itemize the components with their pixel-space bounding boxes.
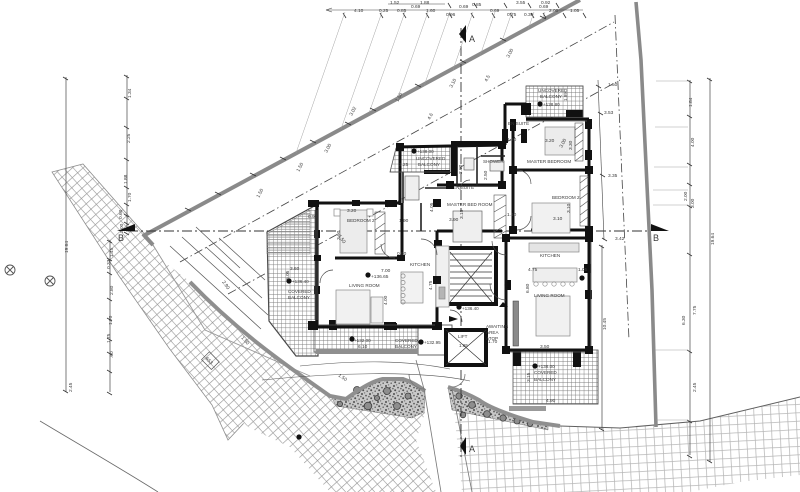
svg-text:0.95: 0.95: [308, 214, 318, 220]
svg-text:BEDROOM 2: BEDROOM 2: [552, 195, 580, 200]
svg-text:1.90: 1.90: [399, 218, 409, 224]
svg-text:1.34: 1.34: [127, 88, 133, 98]
svg-text:COVERED: COVERED: [288, 289, 311, 294]
svg-text:2.80: 2.80: [109, 285, 115, 295]
svg-text:1.20: 1.20: [507, 137, 517, 143]
svg-text:AWAITING: AWAITING: [486, 324, 509, 329]
svg-text:3.90: 3.90: [449, 217, 459, 223]
svg-text:+138.80: +138.80: [543, 102, 560, 107]
svg-text:+138.00: +138.00: [417, 149, 434, 154]
svg-text:B: B: [118, 233, 124, 243]
svg-text:LIVING ROOM: LIVING ROOM: [534, 293, 565, 298]
svg-text:3.20: 3.20: [347, 208, 357, 214]
svg-text:1.89: 1.89: [563, 92, 568, 101]
svg-text:BALCONY: BALCONY: [288, 295, 310, 300]
svg-text:BALCONY: BALCONY: [540, 94, 562, 99]
svg-text:AREA: AREA: [486, 330, 499, 335]
svg-text:EN SUITE: EN SUITE: [508, 121, 529, 126]
svg-text:0.92: 0.92: [541, 0, 551, 6]
svg-text:4.75: 4.75: [528, 267, 538, 273]
svg-text:LIVING ROOM: LIVING ROOM: [349, 283, 380, 288]
svg-text:2.25: 2.25: [126, 133, 132, 143]
svg-text:3.15: 3.15: [459, 209, 465, 219]
svg-text:1.84: 1.84: [688, 97, 694, 107]
svg-text:3.50: 3.50: [540, 344, 550, 350]
svg-text:0.96: 0.96: [446, 12, 456, 18]
svg-text:MASTER BEDROOM: MASTER BEDROOM: [527, 159, 571, 164]
svg-text:A: A: [469, 444, 475, 454]
svg-text:2.00: 2.00: [683, 191, 689, 201]
svg-text:2.60: 2.60: [458, 164, 464, 174]
svg-text:B: B: [653, 233, 659, 243]
svg-text:3.42: 3.42: [615, 236, 625, 242]
svg-text:3.00: 3.00: [690, 198, 696, 208]
svg-text:4.90: 4.90: [546, 398, 556, 404]
svg-text:3.15: 3.15: [526, 372, 532, 382]
svg-text:10.45: 10.45: [602, 318, 608, 330]
svg-text:KITCHEN: KITCHEN: [410, 262, 430, 267]
svg-text:1.50: 1.50: [608, 82, 618, 88]
svg-text:EN SUITE: EN SUITE: [453, 185, 474, 190]
svg-text:1.10: 1.10: [507, 212, 517, 218]
svg-text:2.00: 2.00: [119, 223, 125, 233]
svg-text:1.05: 1.05: [578, 267, 588, 273]
svg-text:7.00: 7.00: [381, 268, 391, 274]
svg-text:0.60: 0.60: [118, 209, 124, 219]
svg-text:COVERED: COVERED: [395, 338, 418, 343]
svg-text:1.88: 1.88: [420, 0, 430, 6]
svg-text:6.30: 6.30: [681, 315, 687, 325]
svg-text:+132.95: +132.95: [424, 340, 441, 345]
svg-text:1.45: 1.45: [109, 247, 115, 257]
svg-text:6.05: 6.05: [285, 270, 291, 280]
svg-text:+132.00: +132.00: [354, 338, 371, 343]
svg-text:1.75: 1.75: [106, 333, 112, 343]
svg-text:+138.00: +138.00: [538, 364, 555, 369]
svg-text:BALCONY: BALCONY: [395, 344, 417, 349]
svg-text:KITCHEN: KITCHEN: [540, 253, 560, 258]
svg-text:1.70: 1.70: [127, 192, 133, 202]
svg-text:MASTER BED ROOM: MASTER BED ROOM: [447, 202, 493, 207]
svg-text:3.10: 3.10: [566, 203, 572, 213]
svg-text:4.00: 4.00: [383, 295, 389, 305]
svg-text:6.10: 6.10: [358, 344, 368, 350]
svg-text:3.20: 3.20: [545, 138, 555, 144]
svg-text:SHOWER: SHOWER: [483, 159, 504, 164]
svg-text:0.85: 0.85: [397, 8, 407, 14]
svg-text:+136.65: +136.65: [371, 274, 389, 280]
svg-text:1.70: 1.70: [488, 339, 498, 345]
svg-text:A: A: [469, 34, 475, 44]
svg-text:1.85: 1.85: [459, 343, 468, 348]
svg-text:UNCOVERED: UNCOVERED: [538, 88, 568, 93]
svg-text:3.53: 3.53: [604, 110, 614, 116]
svg-text:0.69: 0.69: [459, 4, 469, 10]
svg-text:BALCONY: BALCONY: [534, 377, 556, 382]
svg-text:3.30: 3.30: [568, 140, 574, 150]
svg-text:1.52: 1.52: [390, 0, 400, 6]
svg-text:UNCOVERED: UNCOVERED: [416, 156, 446, 161]
svg-text:3.25: 3.25: [399, 162, 409, 168]
svg-text:3.60: 3.60: [290, 266, 300, 272]
svg-text:BALCONY: BALCONY: [418, 162, 440, 167]
svg-text:2.00: 2.00: [549, 8, 559, 14]
svg-text:2.50: 2.50: [483, 170, 489, 180]
svg-text:6.80: 6.80: [525, 283, 531, 293]
svg-text:+136.40: +136.40: [462, 306, 479, 311]
svg-text:LIFT: LIFT: [458, 334, 468, 339]
svg-text:.60: .60: [109, 351, 115, 358]
svg-text:19.64: 19.64: [710, 233, 716, 245]
svg-text:3.10: 3.10: [553, 216, 563, 222]
svg-text:1.05: 1.05: [570, 8, 580, 14]
svg-text:7.75: 7.75: [692, 305, 698, 315]
svg-text:4.10: 4.10: [354, 8, 364, 14]
svg-text:1.88: 1.88: [123, 174, 129, 184]
svg-text:4.00: 4.00: [690, 137, 696, 147]
svg-text:2.45: 2.45: [68, 382, 74, 392]
svg-text:+136.40: +136.40: [292, 279, 309, 284]
svg-text:COVERED: COVERED: [534, 370, 557, 375]
svg-text:3.35: 3.35: [608, 173, 618, 179]
svg-text:19.64: 19.64: [64, 241, 70, 253]
svg-text:2.45: 2.45: [692, 382, 698, 392]
svg-text:3.55: 3.55: [516, 0, 526, 6]
svg-text:BEDROOM 2: BEDROOM 2: [347, 218, 375, 223]
